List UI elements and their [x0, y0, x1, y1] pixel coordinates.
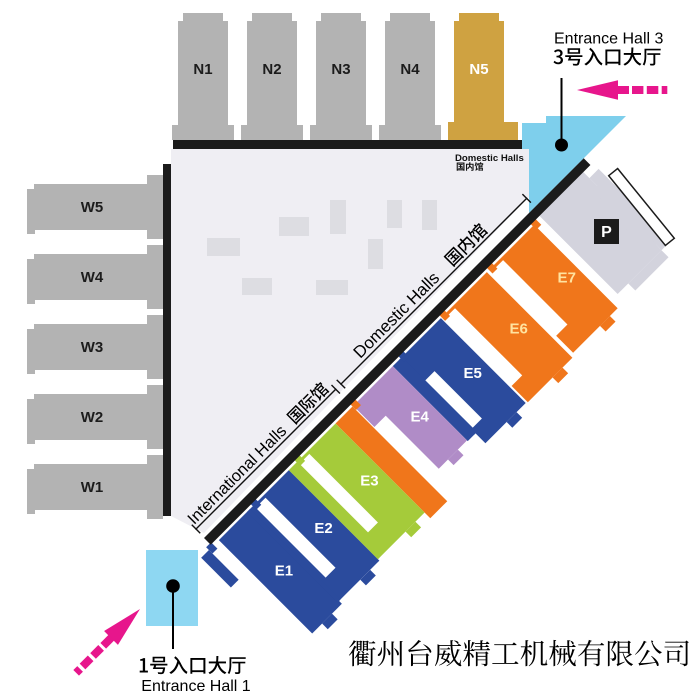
- svg-text:E5: E5: [464, 365, 482, 382]
- svg-text:P: P: [601, 224, 612, 241]
- svg-text:W1: W1: [81, 479, 104, 496]
- svg-text:E1: E1: [275, 562, 293, 579]
- svg-text:Entrance Hall 3: Entrance Hall 3: [554, 31, 663, 48]
- svg-text:W4: W4: [81, 269, 104, 286]
- svg-text:N2: N2: [262, 61, 281, 78]
- svg-text:E6: E6: [509, 321, 527, 338]
- svg-text:W3: W3: [81, 339, 104, 356]
- svg-text:W5: W5: [81, 199, 104, 216]
- svg-text:Domestic Halls: Domestic Halls: [455, 153, 524, 164]
- svg-text:E3: E3: [360, 473, 378, 490]
- svg-text:E2: E2: [314, 520, 332, 537]
- svg-text:N4: N4: [400, 61, 420, 78]
- svg-text:N3: N3: [331, 61, 350, 78]
- svg-text:Entrance Hall 1: Entrance Hall 1: [141, 678, 250, 695]
- svg-text:W2: W2: [81, 409, 104, 426]
- svg-text:N5: N5: [469, 61, 488, 78]
- svg-text:E4: E4: [410, 408, 429, 425]
- svg-text:N1: N1: [193, 61, 212, 78]
- svg-text:E7: E7: [558, 270, 576, 287]
